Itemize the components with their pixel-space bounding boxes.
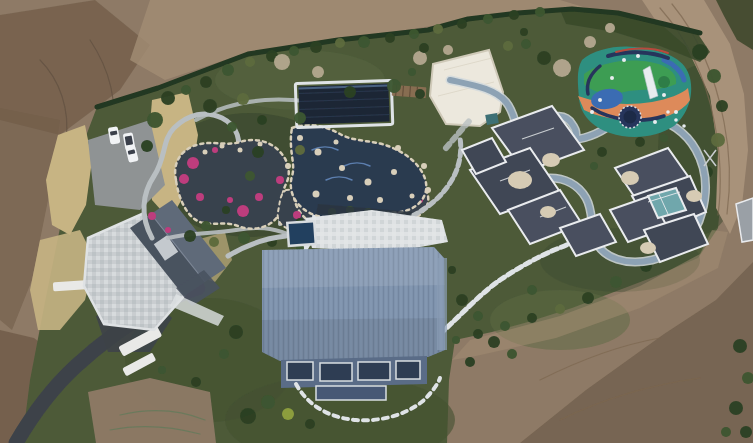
rock (425, 187, 431, 193)
spa-pool (287, 221, 316, 246)
rock (365, 179, 372, 186)
tree (509, 10, 519, 20)
tree (473, 329, 483, 339)
rock (238, 148, 243, 153)
tree (605, 23, 615, 33)
tree (660, 134, 668, 142)
tree (733, 339, 747, 353)
tree (433, 24, 443, 34)
tree (555, 304, 565, 314)
tree (245, 171, 255, 181)
tree (261, 395, 275, 409)
tree (294, 112, 306, 124)
flat-roof-patch (621, 171, 639, 185)
flat-roof-patch (540, 206, 556, 218)
play-equipment (662, 93, 666, 97)
play-equipment (636, 54, 640, 58)
tree (295, 145, 305, 155)
flower-bed (276, 176, 284, 184)
tree (161, 91, 175, 105)
tree (409, 29, 419, 39)
play-equipment (666, 110, 670, 114)
play-equipment (682, 124, 686, 128)
window (358, 362, 390, 380)
pool-equipment (485, 113, 499, 125)
tree (527, 313, 537, 323)
rock (313, 191, 320, 198)
tree (310, 41, 322, 53)
flat-roof-patch (542, 153, 560, 167)
tree (312, 66, 324, 78)
flower-bed (196, 193, 204, 201)
tree (191, 377, 201, 387)
pavilion-louvred-roof (298, 83, 389, 124)
tree (222, 64, 234, 76)
flower-bed (237, 205, 249, 217)
tree (227, 122, 237, 132)
window (320, 363, 352, 381)
flower-bed (165, 227, 171, 233)
tree (305, 419, 315, 429)
play-equipment (646, 68, 650, 72)
tree (289, 46, 299, 56)
tree (181, 85, 191, 95)
tree (500, 321, 510, 331)
tree (520, 28, 528, 36)
tree (408, 68, 416, 76)
tree (465, 357, 475, 367)
tree (729, 401, 743, 415)
aerial-photo-canvas (0, 0, 753, 443)
tree (415, 89, 425, 99)
rock (410, 194, 415, 199)
rock (258, 142, 263, 147)
tree (158, 366, 166, 374)
play-equipment (674, 110, 678, 114)
tree (716, 100, 728, 112)
tree (335, 38, 345, 48)
play-equipment (674, 118, 678, 122)
tree (711, 133, 725, 147)
tree (238, 232, 250, 244)
flower-bed (179, 174, 189, 184)
rock (339, 165, 345, 171)
rock (377, 197, 383, 203)
tree (419, 43, 429, 53)
rock (285, 163, 291, 169)
play-equipment (622, 58, 626, 62)
tree (503, 41, 513, 51)
play-equipment (598, 98, 602, 102)
play-equipment (590, 110, 594, 114)
tree (590, 162, 598, 170)
flower-bed (212, 147, 218, 153)
flat-roof-patch (640, 242, 656, 254)
rock (347, 195, 353, 201)
tree (527, 285, 537, 295)
tree (457, 19, 467, 29)
tree (385, 33, 395, 43)
tree (141, 140, 153, 152)
flat-roof-patch (686, 190, 702, 202)
tree (521, 39, 531, 49)
tree (582, 292, 594, 304)
play-dome (658, 76, 670, 88)
tree (740, 426, 752, 438)
tree (537, 51, 551, 65)
window (287, 362, 313, 380)
tree (507, 349, 517, 359)
flat-roof-patch (508, 171, 532, 189)
rock (421, 163, 427, 169)
tree (483, 14, 493, 24)
tree (448, 266, 456, 274)
tree (209, 237, 219, 247)
play-equipment (610, 76, 614, 80)
tree (413, 51, 427, 65)
tree (553, 59, 571, 77)
tree (184, 230, 196, 242)
tree (721, 427, 731, 437)
rock (315, 149, 322, 156)
tree (229, 325, 243, 339)
flower-bed (255, 193, 263, 201)
tree (635, 137, 645, 147)
tree (245, 57, 255, 67)
flower-bed (148, 212, 156, 220)
tree (257, 115, 267, 125)
tree (358, 36, 370, 48)
side-eave (437, 258, 447, 350)
flower-bed (293, 211, 301, 219)
tree (282, 408, 294, 420)
pool-pavilion (295, 80, 392, 127)
tree (443, 45, 453, 55)
tree (201, 221, 211, 231)
rock (297, 135, 303, 141)
tree (147, 112, 163, 128)
tree (456, 294, 468, 306)
tree (610, 276, 622, 288)
rock (334, 140, 339, 145)
tree (707, 69, 721, 83)
window (396, 361, 420, 379)
playground (578, 47, 691, 138)
tree (237, 93, 249, 105)
tree (488, 336, 500, 348)
rock (220, 144, 225, 149)
flower-bed (227, 197, 233, 203)
tree (200, 76, 212, 88)
lower-glazing (316, 386, 386, 400)
tree (219, 349, 229, 359)
rock (203, 150, 208, 155)
flower-bed (187, 157, 199, 169)
tree (473, 311, 483, 321)
tree (240, 408, 256, 424)
tree (452, 336, 460, 344)
tree (597, 147, 607, 157)
roof-shade (262, 318, 445, 361)
tree (203, 99, 217, 113)
tree (274, 54, 290, 70)
tree (252, 146, 264, 158)
rock (391, 169, 397, 175)
rock (395, 145, 401, 151)
west-pond (175, 140, 289, 229)
tree (222, 206, 230, 214)
tree (692, 44, 708, 60)
trampoline-mat (624, 111, 637, 124)
aerial-photo (0, 0, 753, 443)
roof-sheen (262, 247, 445, 288)
spa-water (287, 221, 316, 246)
tree (584, 36, 596, 48)
tree (387, 79, 401, 93)
tree (344, 86, 356, 98)
play-equipment (653, 120, 657, 124)
tree (535, 7, 545, 17)
